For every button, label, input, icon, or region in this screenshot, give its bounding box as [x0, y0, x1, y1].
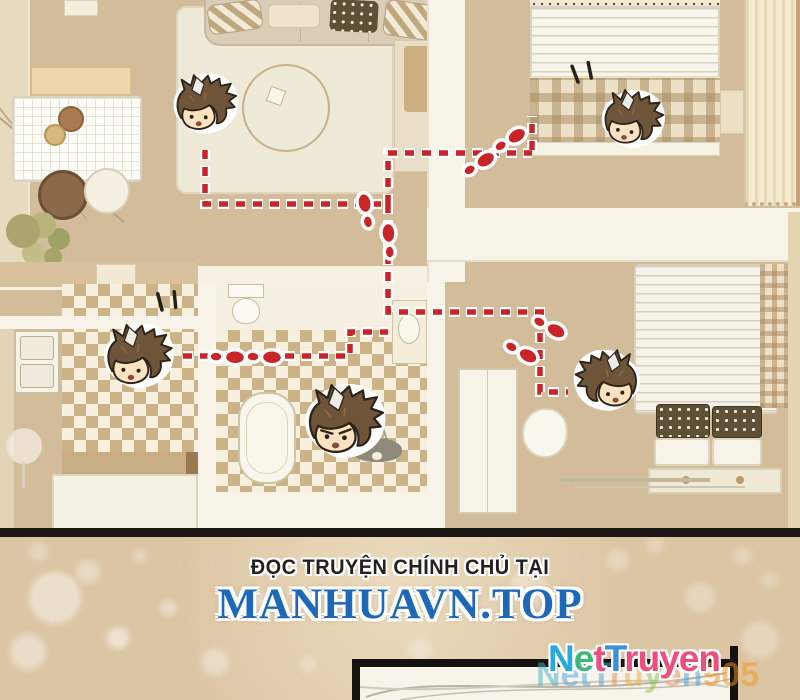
- logo-letter-7: e: [679, 638, 699, 679]
- trail-casing: [540, 316, 568, 392]
- bottom-bed-pillow-dark-2: [712, 406, 762, 438]
- footprint-icon: [530, 312, 569, 342]
- logo-letter-3: T: [605, 638, 625, 679]
- bokeh-dot: [10, 634, 46, 670]
- wood-edge-right: [796, 0, 800, 206]
- wall-vertical-left-mid: [198, 282, 216, 528]
- logo-letter-2: t: [593, 638, 604, 679]
- sink-basin-top: [20, 336, 54, 360]
- kitchen-island-table: [52, 474, 198, 528]
- footprint-icon: [491, 124, 530, 156]
- bathroom-bottom-white: [216, 492, 427, 528]
- sink-basin-bottom: [20, 364, 54, 388]
- bokeh-dot: [201, 648, 229, 676]
- chair-white: [84, 168, 130, 214]
- beanbag: [522, 408, 568, 458]
- plate-tan: [44, 124, 66, 146]
- logo-letter-6: y: [659, 638, 679, 679]
- promo-tagline: ĐỌC TRUYỆN CHÍNH CHỦ TẠI: [20, 556, 780, 580]
- bokeh-dot: [647, 537, 663, 553]
- wardrobe-seam: [487, 370, 488, 512]
- logo-letter-0: N: [548, 638, 574, 679]
- chair-dark: [38, 170, 88, 220]
- footprint-icon: [502, 337, 541, 367]
- rug-circle-decor: [242, 64, 330, 152]
- top-bed-blanket: [530, 76, 720, 146]
- watermark-letter-10: 0: [721, 656, 740, 694]
- toilet-tank: [228, 284, 264, 298]
- bokeh-dot: [107, 627, 129, 649]
- kitchen-counter-bottom: [62, 452, 198, 474]
- sofa-pillow-dark: [329, 0, 379, 33]
- logo-letter-4: r: [624, 638, 637, 679]
- desk-edge-line-2: [575, 486, 745, 488]
- wall-horizontal-right: [427, 208, 800, 262]
- bottom-bed-pillow-dark-1: [656, 404, 710, 438]
- nettruyen-logo: NetTruyen: [548, 638, 720, 680]
- logo-letter-1: e: [574, 638, 594, 679]
- kitchen-counter-left: [0, 329, 14, 528]
- bottom-bed-pillow-white-2: [712, 438, 762, 466]
- closet-strip-right: [788, 212, 800, 528]
- curtain: [744, 0, 796, 206]
- top-bed-footer: [530, 142, 720, 156]
- potted-plant: [6, 214, 40, 248]
- shelf-knob: [736, 476, 744, 484]
- trail-dashes: [540, 316, 568, 392]
- desk-edge-line: [560, 478, 710, 482]
- comic-page: ĐỌC TRUYỆN CHÍNH CHỦ TẠI MANHUAVN.TOP Ne…: [0, 0, 800, 700]
- watermark-letter-11: 5: [740, 656, 759, 694]
- next-panel-border-left: [352, 659, 360, 700]
- floorplan-panel: [0, 0, 800, 528]
- bathroom-sink-oval: [398, 314, 420, 344]
- pendant-lamp-bulb: [372, 452, 382, 460]
- toilet-bowl: [232, 298, 260, 324]
- wall-vertical-right-mid: [427, 282, 445, 528]
- panel-bottom-border: [0, 528, 800, 537]
- footprint-icon: [460, 148, 499, 180]
- fan-stand: [22, 462, 25, 488]
- bottom-bed-duvet: [634, 264, 778, 414]
- bathtub-inner: [246, 402, 288, 474]
- kitchen-tile-floor: [62, 284, 198, 452]
- bottom-bed-gingham-edge: [760, 264, 788, 408]
- kitchen-wall-band: [0, 316, 198, 329]
- kitchen-cabinet-door: [96, 264, 136, 286]
- bokeh-dot: [409, 639, 431, 661]
- logo-letter-8: n: [698, 638, 720, 679]
- nightstand: [720, 90, 744, 134]
- wardrobe: [458, 368, 518, 514]
- sofa-pillow-plain: [268, 4, 320, 28]
- bottom-bed-pillow-white-1: [654, 438, 710, 466]
- top-left-box: [64, 0, 98, 16]
- logo-letter-5: u: [638, 638, 660, 679]
- footprint-icon: [355, 191, 376, 230]
- promo-site-url: MANHUAVN.TOP: [0, 580, 800, 629]
- footprint-icon: [380, 222, 398, 259]
- console-bench: [30, 66, 132, 96]
- standing-fan: [6, 428, 42, 464]
- bokeh-dot: [300, 656, 316, 672]
